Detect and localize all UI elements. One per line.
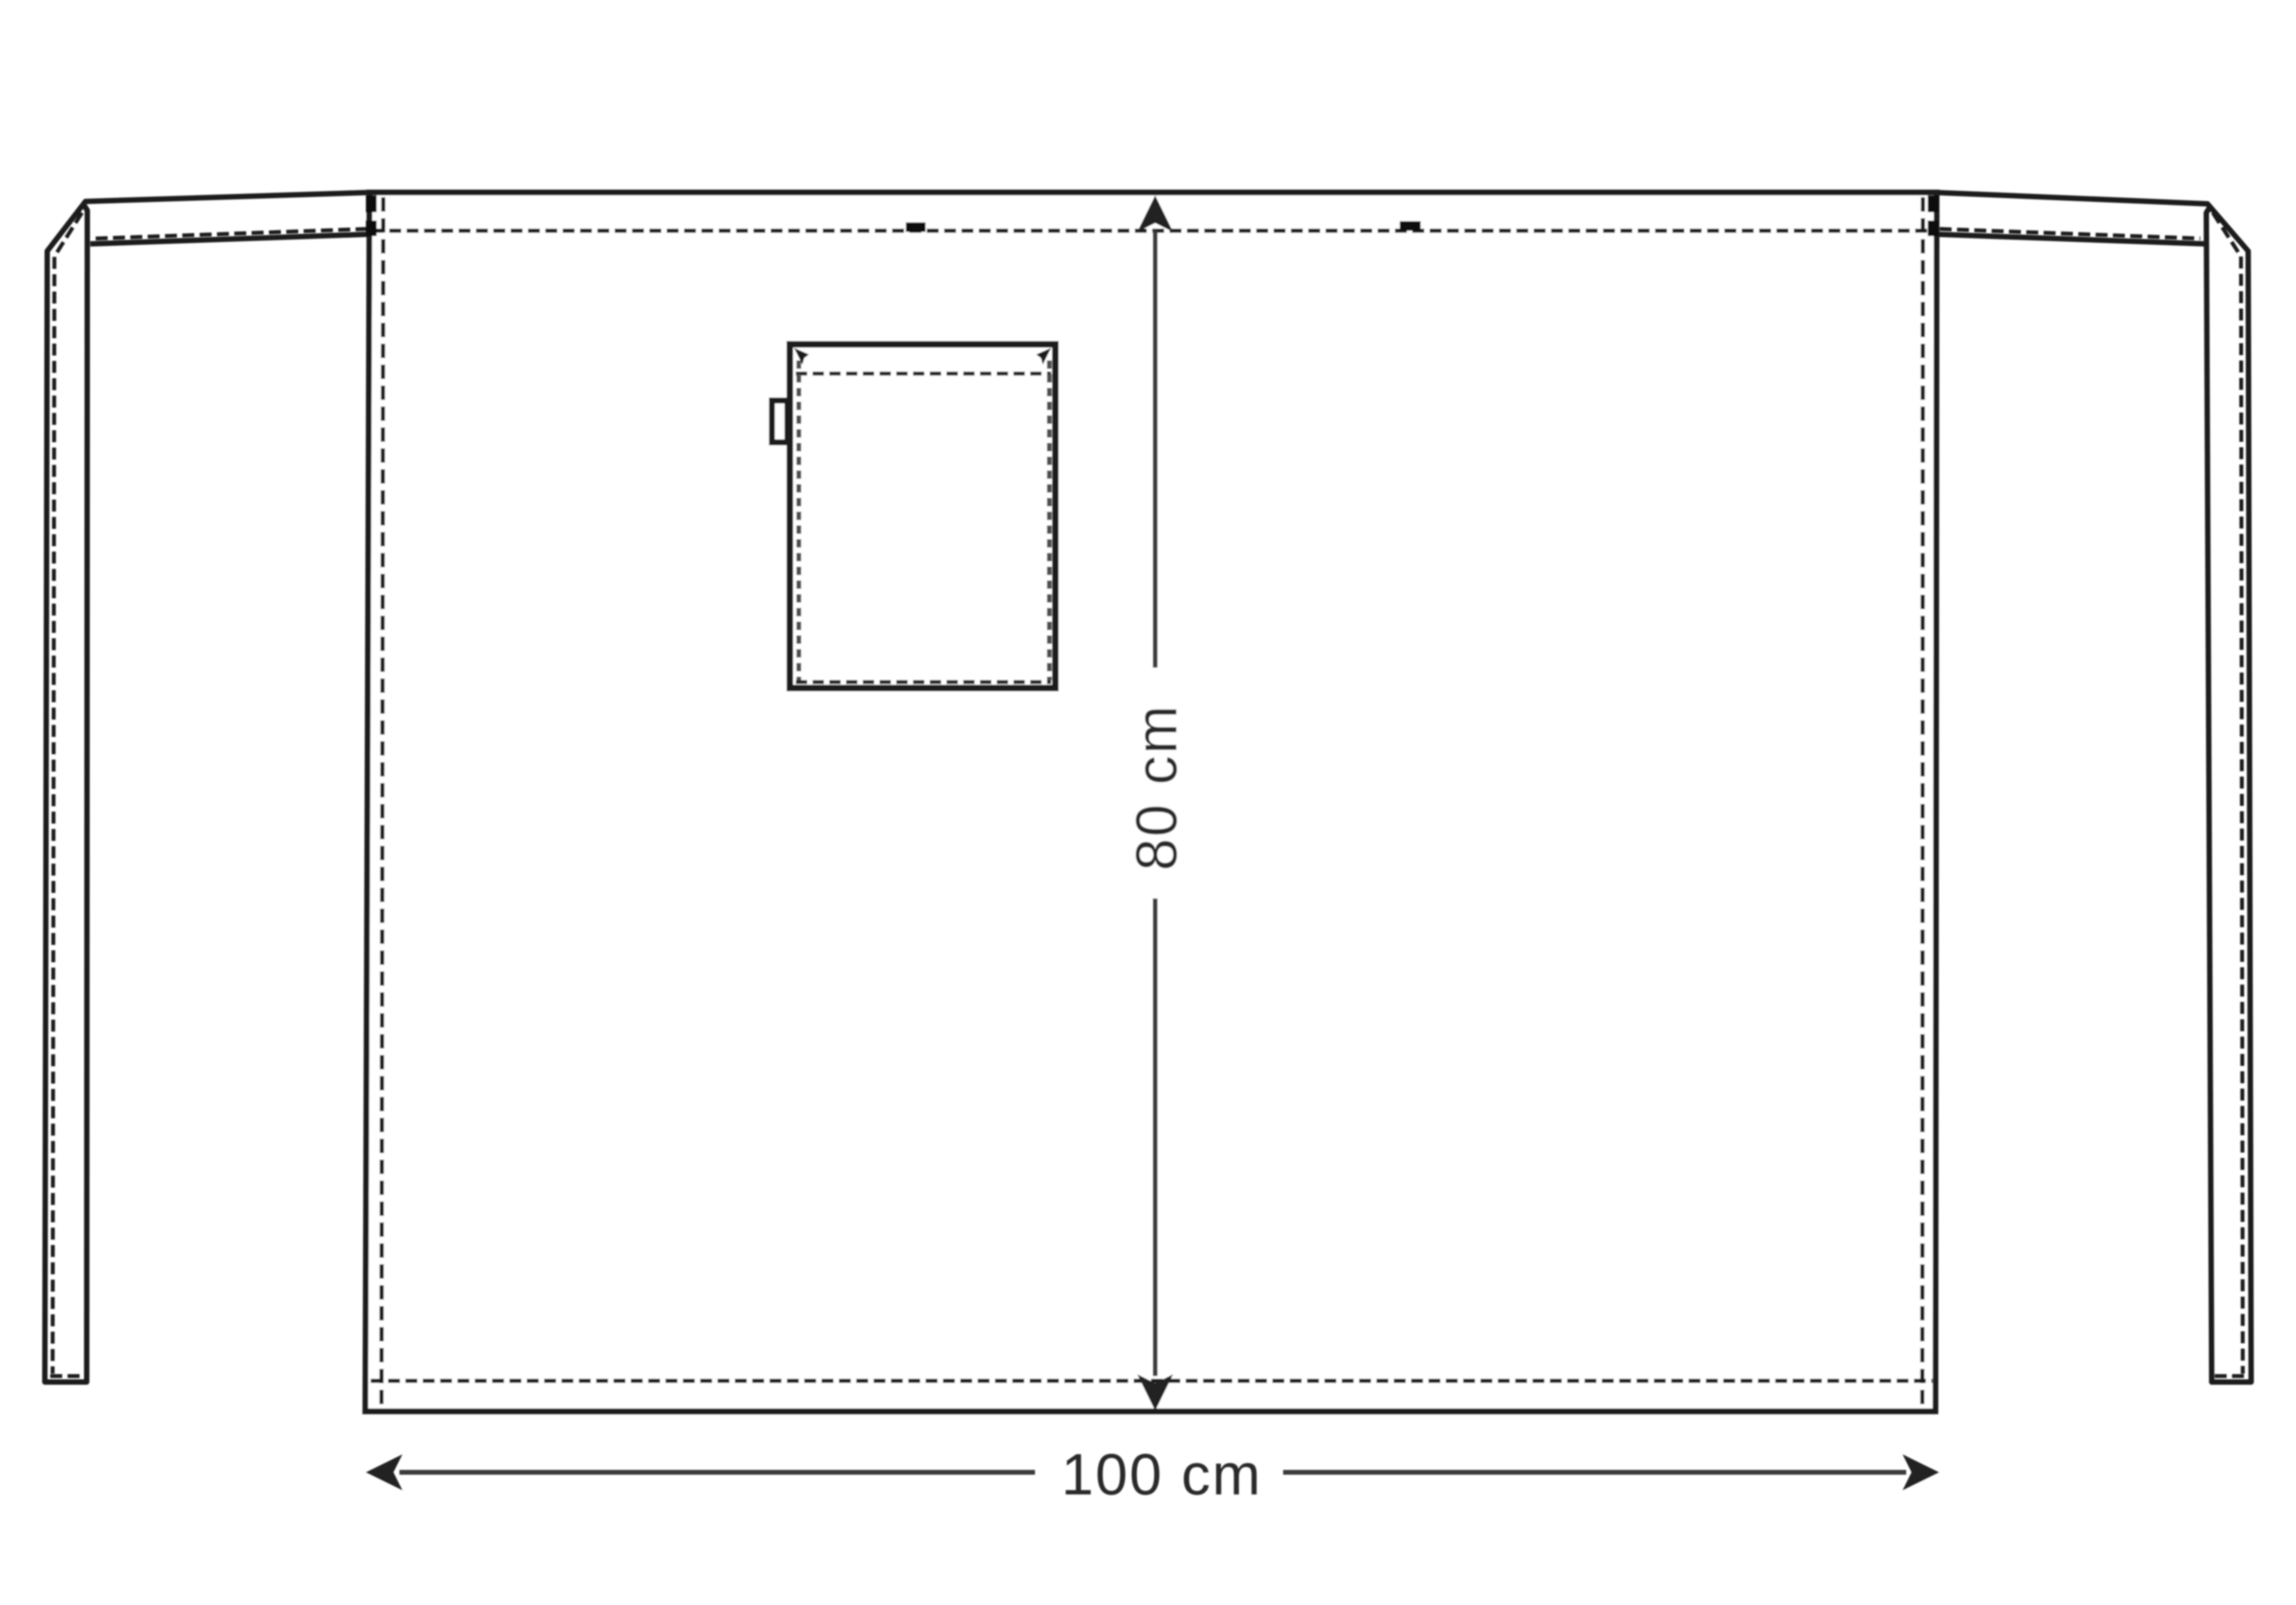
svg-text:80 cm: 80 cm [1124, 704, 1189, 870]
svg-text:100 cm: 100 cm [1061, 1442, 1262, 1507]
